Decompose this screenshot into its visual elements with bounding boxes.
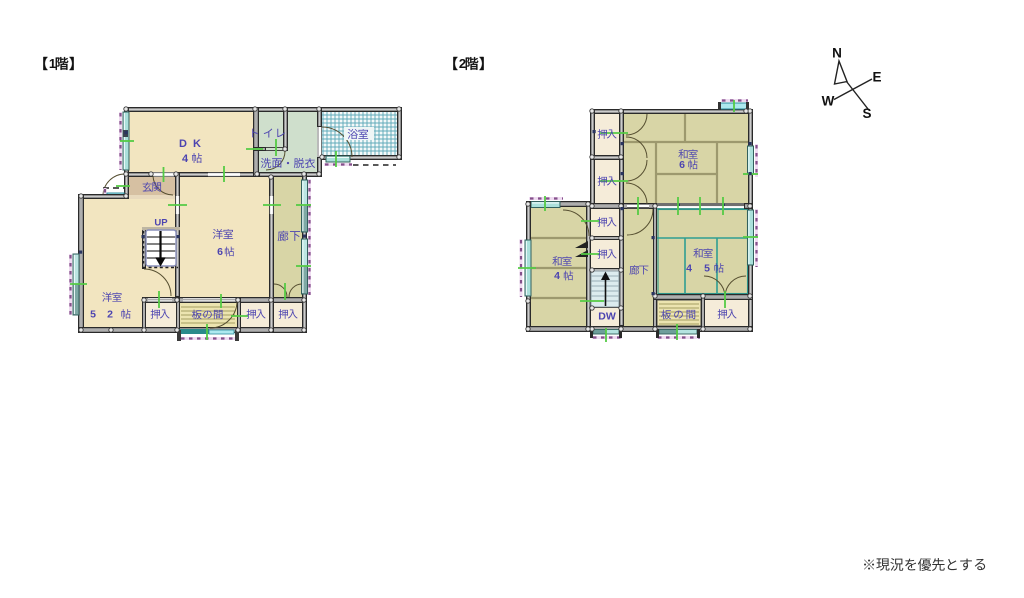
svg-text:K: K bbox=[193, 138, 201, 150]
svg-text:5: 5 bbox=[704, 263, 710, 275]
svg-text:UP: UP bbox=[154, 217, 168, 228]
svg-text:6: 6 bbox=[217, 246, 223, 258]
svg-text:D: D bbox=[179, 138, 187, 150]
svg-text:4: 4 bbox=[554, 270, 560, 282]
svg-text:5: 5 bbox=[90, 309, 96, 321]
svg-text:2: 2 bbox=[459, 56, 466, 71]
svg-text:W: W bbox=[822, 94, 835, 109]
svg-text:2: 2 bbox=[107, 309, 113, 321]
svg-text:6: 6 bbox=[679, 159, 685, 171]
svg-text:1: 1 bbox=[49, 56, 56, 71]
svg-text:S: S bbox=[862, 106, 871, 121]
svg-text:DW: DW bbox=[598, 311, 616, 323]
svg-text:E: E bbox=[872, 70, 881, 85]
svg-text:4: 4 bbox=[686, 263, 692, 275]
svg-text:4: 4 bbox=[182, 153, 189, 165]
svg-text:N: N bbox=[832, 46, 842, 61]
